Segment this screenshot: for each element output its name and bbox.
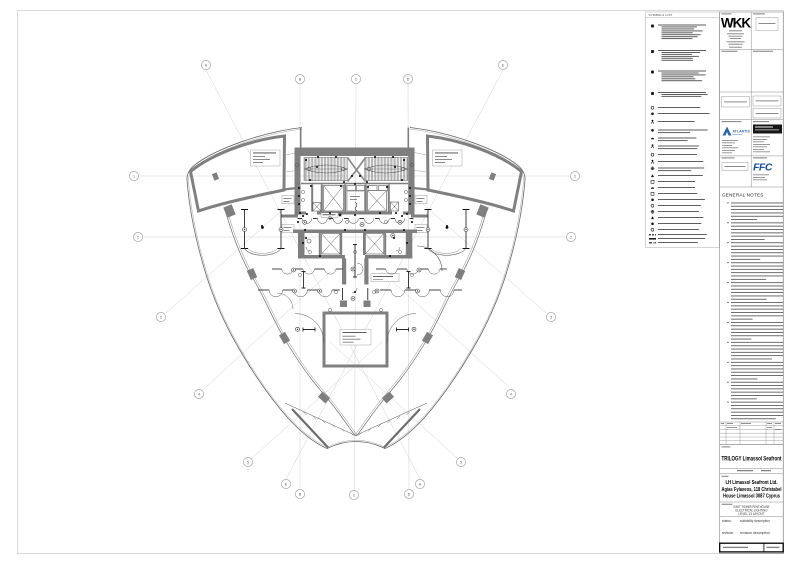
svg-text:C: C [353,493,356,497]
svg-text:LEVEL 13 LAYOUT: LEVEL 13 LAYOUT [739,512,765,516]
svg-text:1: 1 [574,174,576,178]
svg-text:3: 3 [550,315,552,319]
svg-text:LH Limassol Seafront Ltd.: LH Limassol Seafront Ltd. [726,480,778,486]
svg-text:SYMBOLS LIST: SYMBOLS LIST [649,13,673,17]
svg-text:WKK: WKK [721,16,751,31]
svg-text:Agias Fylaxeos, 118 Christabel: Agias Fylaxeos, 118 Christabel [722,487,782,493]
svg-text:4: 4 [510,392,512,396]
svg-text:revision description: revision description [740,531,770,535]
svg-text:suitability description: suitability description [740,519,770,523]
svg-text:3: 3 [160,315,162,319]
svg-text:TRILOGY Limassol Seafront: TRILOGY Limassol Seafront [722,456,783,463]
svg-text:D: D [407,77,410,81]
svg-text:GENERAL NOTES: GENERAL NOTES [722,193,764,198]
svg-text:D: D [408,492,411,496]
svg-text:5: 5 [460,460,462,464]
svg-text:C: C [355,77,358,81]
svg-text:FFC: FFC [753,162,773,174]
svg-text:5: 5 [247,460,249,464]
svg-text:House Limassol 3087 Cyprus: House Limassol 3087 Cyprus [723,494,780,500]
svg-text:4: 4 [198,392,200,396]
svg-text:revision: revision [722,531,734,535]
svg-text:ATLANTIS: ATLANTIS [733,130,751,134]
svg-text:status: status [722,519,731,523]
svg-text:2: 2 [570,235,572,239]
svg-text:2: 2 [137,235,139,239]
svg-text:1: 1 [133,174,135,178]
